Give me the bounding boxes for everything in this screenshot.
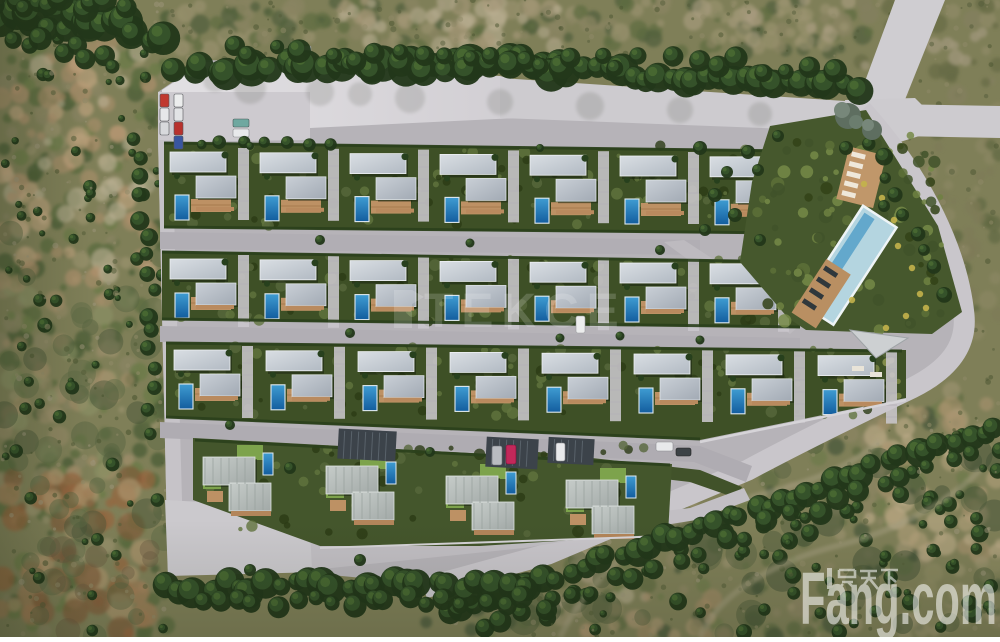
- svg-text:TEKCE: TEKCE: [424, 285, 627, 338]
